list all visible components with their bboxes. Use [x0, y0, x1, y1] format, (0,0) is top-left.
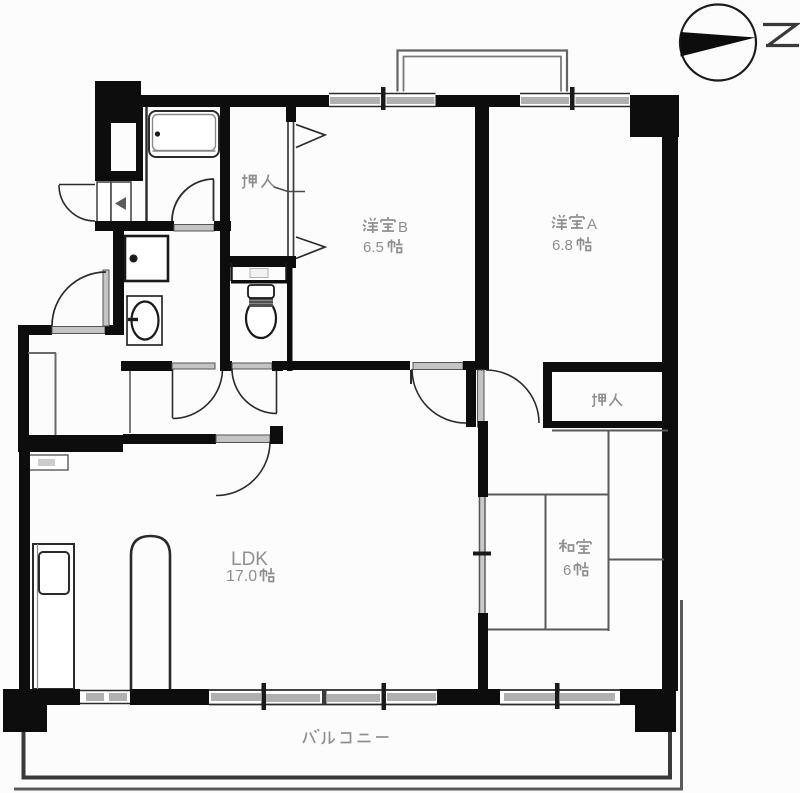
- svg-text:17.0: 17.0: [226, 568, 257, 585]
- svg-text:LDK: LDK: [231, 549, 268, 570]
- svg-text:B: B: [398, 219, 408, 236]
- svg-text:6: 6: [563, 562, 571, 579]
- svg-text:6.8: 6.8: [552, 237, 573, 254]
- svg-text:A: A: [587, 216, 597, 233]
- svg-text:6.5: 6.5: [363, 239, 384, 256]
